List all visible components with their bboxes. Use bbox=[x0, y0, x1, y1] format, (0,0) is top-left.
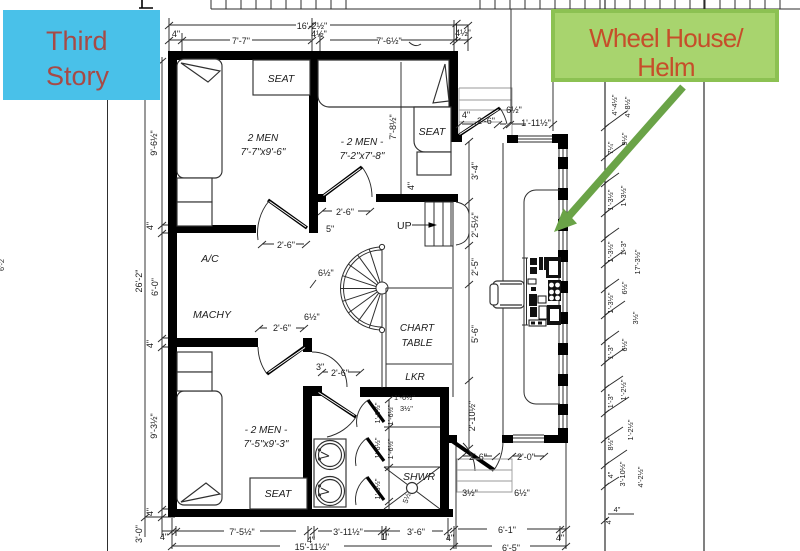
svg-text:4": 4" bbox=[145, 340, 155, 348]
svg-text:CHART: CHART bbox=[400, 323, 435, 334]
svg-text:9½": 9½" bbox=[620, 132, 629, 145]
svg-text:Wheel House/: Wheel House/ bbox=[589, 23, 744, 53]
svg-text:3'-10½": 3'-10½" bbox=[618, 461, 627, 486]
svg-text:4": 4" bbox=[556, 533, 564, 543]
svg-text:26'-2": 26'-2" bbox=[134, 270, 144, 293]
svg-text:4": 4" bbox=[462, 110, 470, 120]
svg-text:2'-0": 2'-0" bbox=[517, 452, 535, 462]
svg-text:2'-6": 2'-6" bbox=[277, 240, 295, 250]
svg-text:1'-3½": 1'-3½" bbox=[619, 185, 628, 206]
svg-text:3'-6": 3'-6" bbox=[407, 527, 425, 537]
svg-text:5": 5" bbox=[326, 224, 334, 234]
svg-text:7'-2"x7'-8": 7'-2"x7'-8" bbox=[340, 151, 385, 162]
svg-text:4": 4" bbox=[446, 533, 454, 543]
svg-text:2'-6": 2'-6" bbox=[477, 116, 495, 126]
svg-text:1'-6½": 1'-6½" bbox=[386, 404, 395, 425]
svg-text:MACHY: MACHY bbox=[193, 309, 232, 321]
svg-text:4'-8½": 4'-8½" bbox=[623, 96, 632, 117]
svg-text:2'-6": 2'-6" bbox=[469, 452, 487, 462]
svg-text:4": 4" bbox=[172, 29, 180, 39]
svg-text:1'-2½": 1'-2½" bbox=[626, 419, 635, 440]
svg-text:2 MEN: 2 MEN bbox=[247, 133, 279, 144]
svg-text:2'-6": 2'-6" bbox=[331, 368, 349, 378]
svg-text:6½": 6½" bbox=[506, 105, 522, 115]
svg-text:1'-6½": 1'-6½" bbox=[394, 393, 415, 402]
svg-text:4": 4" bbox=[145, 222, 155, 230]
svg-text:7'-6½": 7'-6½" bbox=[376, 36, 401, 46]
svg-text:2'-6": 2'-6" bbox=[273, 323, 291, 333]
svg-text:7'-7": 7'-7" bbox=[232, 36, 250, 46]
svg-text:6'-5": 6'-5" bbox=[502, 543, 520, 551]
svg-text:1'-3½": 1'-3½" bbox=[606, 189, 615, 210]
svg-text:TABLE: TABLE bbox=[402, 338, 433, 349]
svg-text:SEAT: SEAT bbox=[268, 73, 296, 85]
svg-text:3½": 3½" bbox=[400, 404, 413, 413]
svg-text:3½": 3½" bbox=[462, 488, 478, 498]
svg-text:7'-5"x9'-3": 7'-5"x9'-3" bbox=[244, 439, 289, 450]
svg-text:4": 4" bbox=[604, 517, 613, 524]
svg-text:SEAT: SEAT bbox=[419, 126, 447, 138]
svg-text:- 2 MEN -: - 2 MEN - bbox=[245, 425, 288, 436]
svg-text:6½": 6½" bbox=[620, 281, 629, 294]
svg-text:3'-11½": 3'-11½" bbox=[333, 527, 363, 537]
svg-text:LKR: LKR bbox=[405, 372, 424, 383]
svg-text:4": 4" bbox=[614, 505, 621, 514]
svg-text:1'-3½": 1'-3½" bbox=[606, 241, 615, 262]
svg-text:1'-6½": 1'-6½" bbox=[373, 402, 382, 423]
svg-text:2'-10½": 2'-10½" bbox=[467, 401, 477, 431]
svg-text:3'-4": 3'-4" bbox=[470, 162, 480, 180]
svg-text:6½": 6½" bbox=[514, 488, 530, 498]
svg-text:17'-3½": 17'-3½" bbox=[633, 249, 642, 274]
svg-text:4'-4½": 4'-4½" bbox=[610, 94, 619, 115]
svg-text:7¼": 7¼" bbox=[606, 141, 615, 154]
svg-text:4": 4" bbox=[160, 532, 168, 542]
svg-text:4½": 4½" bbox=[311, 29, 327, 39]
svg-text:8½": 8½" bbox=[606, 437, 615, 450]
svg-text:9'-3½": 9'-3½" bbox=[149, 413, 159, 438]
svg-text:1'-6½": 1'-6½" bbox=[373, 437, 382, 458]
svg-text:7'-7"x9'-6": 7'-7"x9'-6" bbox=[241, 147, 286, 158]
svg-text:1": 1" bbox=[381, 532, 389, 542]
svg-text:6'-2: 6'-2 bbox=[0, 259, 6, 271]
svg-text:1'-2½": 1'-2½" bbox=[619, 379, 628, 400]
svg-text:3'-0": 3'-0" bbox=[134, 525, 144, 543]
svg-text:3½": 3½" bbox=[631, 311, 640, 324]
svg-text:Third: Third bbox=[46, 26, 108, 56]
svg-text:SHWR: SHWR bbox=[403, 471, 435, 483]
svg-text:9'-6½": 9'-6½" bbox=[149, 130, 159, 155]
svg-text:7'-8½": 7'-8½" bbox=[388, 114, 398, 139]
svg-text:6½": 6½" bbox=[620, 338, 629, 351]
svg-text:6½": 6½" bbox=[318, 268, 334, 278]
svg-text:Helm: Helm bbox=[637, 52, 694, 82]
svg-text:5'-6": 5'-6" bbox=[470, 325, 480, 343]
svg-text:6'-0": 6'-0" bbox=[150, 278, 160, 296]
svg-text:4": 4" bbox=[606, 471, 615, 478]
svg-text:4½": 4½" bbox=[455, 28, 471, 38]
svg-text:1'-6½": 1'-6½" bbox=[373, 478, 382, 499]
svg-text:1'-3": 1'-3" bbox=[606, 344, 615, 359]
svg-text:7'-5½": 7'-5½" bbox=[229, 527, 254, 537]
svg-text:2'-5": 2'-5" bbox=[470, 258, 480, 276]
svg-text:2'-5½": 2'-5½" bbox=[470, 212, 480, 237]
svg-text:4'-2½": 4'-2½" bbox=[636, 466, 645, 487]
svg-text:4": 4" bbox=[406, 182, 416, 190]
svg-text:6½": 6½" bbox=[304, 312, 320, 322]
svg-text:SEAT: SEAT bbox=[265, 488, 293, 500]
svg-text:4": 4" bbox=[145, 508, 155, 516]
svg-text:3": 3" bbox=[316, 362, 324, 372]
svg-text:1'-3": 1'-3" bbox=[619, 240, 628, 255]
svg-text:1'-3": 1'-3" bbox=[606, 393, 615, 408]
svg-text:- 2 MEN -: - 2 MEN - bbox=[341, 137, 384, 148]
svg-text:A/C: A/C bbox=[200, 253, 219, 265]
svg-text:1'-3½": 1'-3½" bbox=[606, 292, 615, 313]
svg-text:UP: UP bbox=[397, 220, 412, 232]
svg-text:Story: Story bbox=[46, 61, 110, 91]
svg-text:6'-1": 6'-1" bbox=[498, 525, 516, 535]
svg-text:1'-6½": 1'-6½" bbox=[386, 438, 395, 459]
svg-text:2'-6": 2'-6" bbox=[336, 207, 354, 217]
svg-text:1'-11½": 1'-11½" bbox=[521, 118, 551, 128]
svg-text:15'-11½": 15'-11½" bbox=[295, 542, 330, 551]
